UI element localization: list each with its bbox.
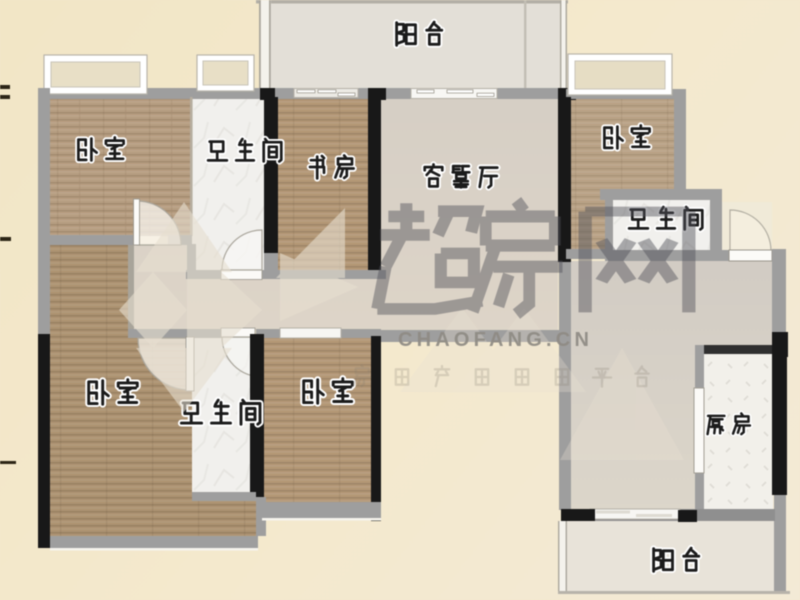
svg-text:CHAOFANG.CN: CHAOFANG.CN (398, 329, 593, 351)
